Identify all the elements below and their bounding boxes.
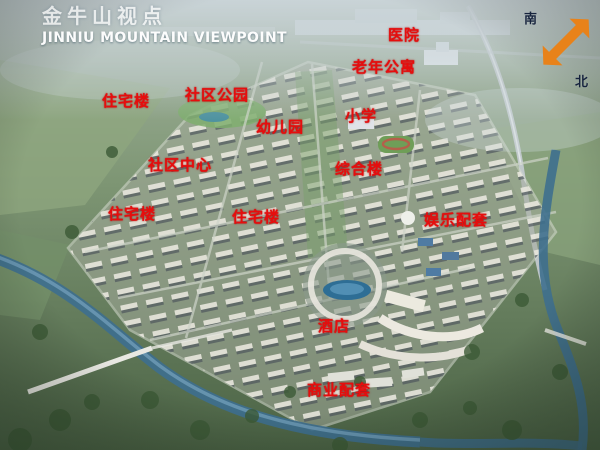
- label-complex-building: 综合楼: [335, 161, 383, 178]
- label-hotel: 酒店: [318, 318, 350, 335]
- jinniu-mountain-viewpoint-rendering: 金牛山视点 JINNIU MOUNTAIN VIEWPOINT 南 北 医院 老…: [0, 0, 600, 450]
- compass-arrow-icon: [534, 10, 598, 74]
- label-community-center: 社区中心: [148, 157, 212, 174]
- vignette: [0, 0, 600, 450]
- compass-north-label: 北: [575, 71, 588, 90]
- label-primary-school: 小学: [345, 108, 377, 125]
- label-community-park: 社区公园: [185, 87, 249, 104]
- label-residential-2: 住宅楼: [108, 206, 156, 223]
- label-senior-apartments: 老年公寓: [352, 59, 416, 76]
- label-residential-3: 住宅楼: [232, 209, 280, 226]
- label-commercial-zone: 商业配套: [307, 382, 371, 399]
- aerial-scene: [0, 0, 600, 450]
- label-kindergarten: 幼儿园: [256, 119, 304, 136]
- label-entertainment-zone: 娱乐配套: [424, 212, 488, 229]
- label-residential-1: 住宅楼: [102, 93, 150, 110]
- label-hospital: 医院: [388, 27, 420, 44]
